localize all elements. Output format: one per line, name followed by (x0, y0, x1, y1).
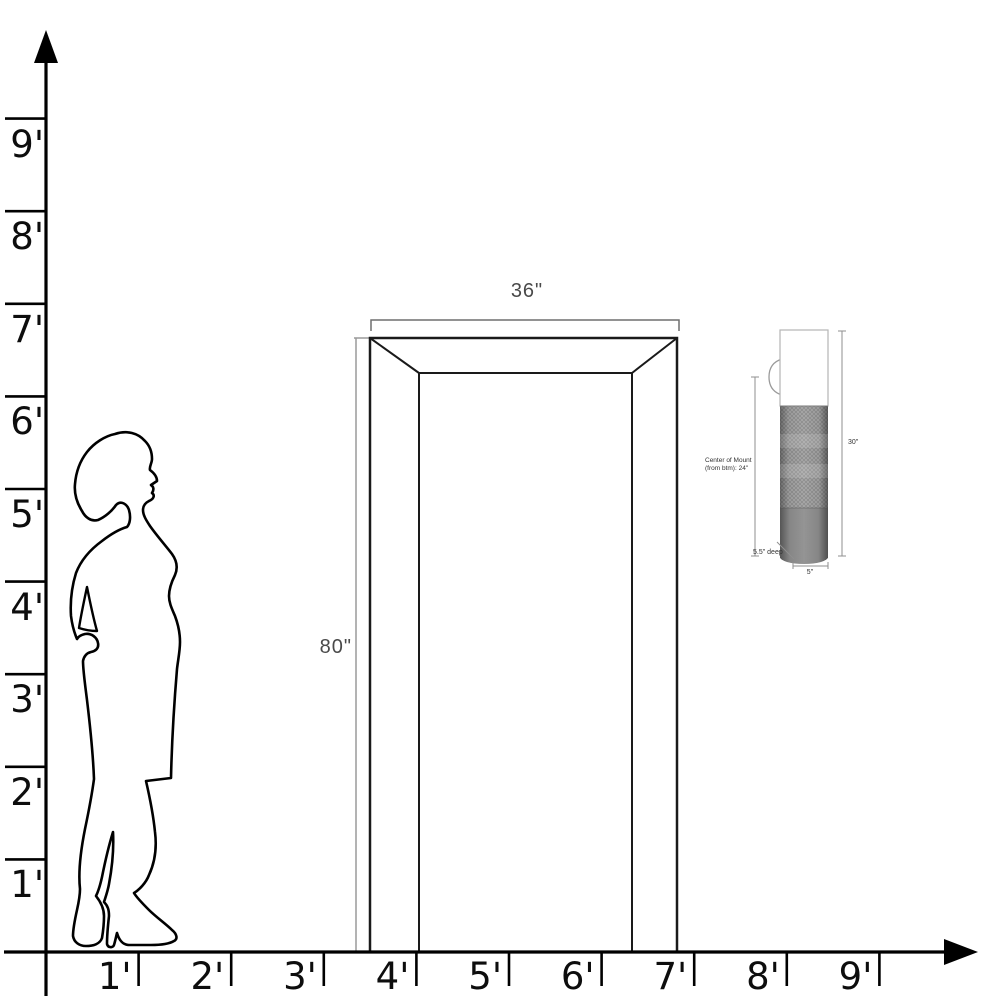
y-axis-label-3ft: 3' (0, 681, 44, 719)
x-axis-arrowhead (944, 939, 978, 965)
y-axis-label-6ft: 6' (0, 403, 44, 441)
y-axis-label-5ft: 5' (0, 496, 44, 534)
sconce-height-label: 30" (848, 439, 858, 447)
x-axis-label-6ft: 6' (535, 958, 595, 996)
x-axis-label-2ft: 2' (164, 958, 224, 996)
door-drawing (354, 320, 679, 952)
sconce-drawing (751, 330, 846, 569)
scale-diagram-canvas: 36" 80" 30" Center of Mount (from btm): … (0, 0, 1000, 1000)
sconce-height-dimension-line (838, 331, 846, 556)
y-axis-label-9ft: 9' (0, 126, 44, 164)
door-width-dimension-bracket (371, 320, 679, 331)
y-axis-label-1ft: 1' (0, 866, 44, 904)
door-inner-frame (419, 373, 632, 952)
sconce-mount-label-line2: (from btm): 24" (705, 465, 748, 472)
sconce-mesh-band (780, 434, 828, 448)
door-corner-bevels (370, 338, 677, 373)
sconce-mount-label-line1: Center of Mount (705, 457, 752, 464)
sconce-depth-label: 5.5" deep (753, 549, 783, 557)
sconce-top-section (780, 330, 828, 406)
x-axis-label-1ft: 1' (72, 958, 132, 996)
x-axis-label-4ft: 4' (349, 958, 409, 996)
sconce-mount-label: Center of Mount (from btm): 24" (705, 457, 755, 473)
sconce-mesh-texture (780, 406, 828, 508)
x-axis-label-7ft: 7' (627, 958, 687, 996)
door-width-label: 36" (487, 281, 567, 301)
sconce-diameter-label: 5" (798, 569, 822, 577)
person-silhouette (71, 432, 180, 947)
x-axis-label-3ft: 3' (257, 958, 317, 996)
x-axis-label-9ft: 9' (812, 958, 872, 996)
sconce-mesh-band (780, 464, 828, 478)
y-axis-arrowhead (34, 30, 58, 63)
x-axis-label-5ft: 5' (442, 958, 502, 996)
y-axis-label-7ft: 7' (0, 311, 44, 349)
y-axis-label-8ft: 8' (0, 218, 44, 256)
door-height-label: 80" (292, 637, 352, 657)
scale-diagram (0, 0, 1000, 1000)
y-axis-label-4ft: 4' (0, 589, 44, 627)
y-axis-label-2ft: 2' (0, 774, 44, 812)
x-axis-label-8ft: 8' (720, 958, 780, 996)
door-height-dimension-line (354, 338, 370, 951)
door-outer-frame (370, 338, 677, 952)
person-outline (71, 432, 180, 947)
